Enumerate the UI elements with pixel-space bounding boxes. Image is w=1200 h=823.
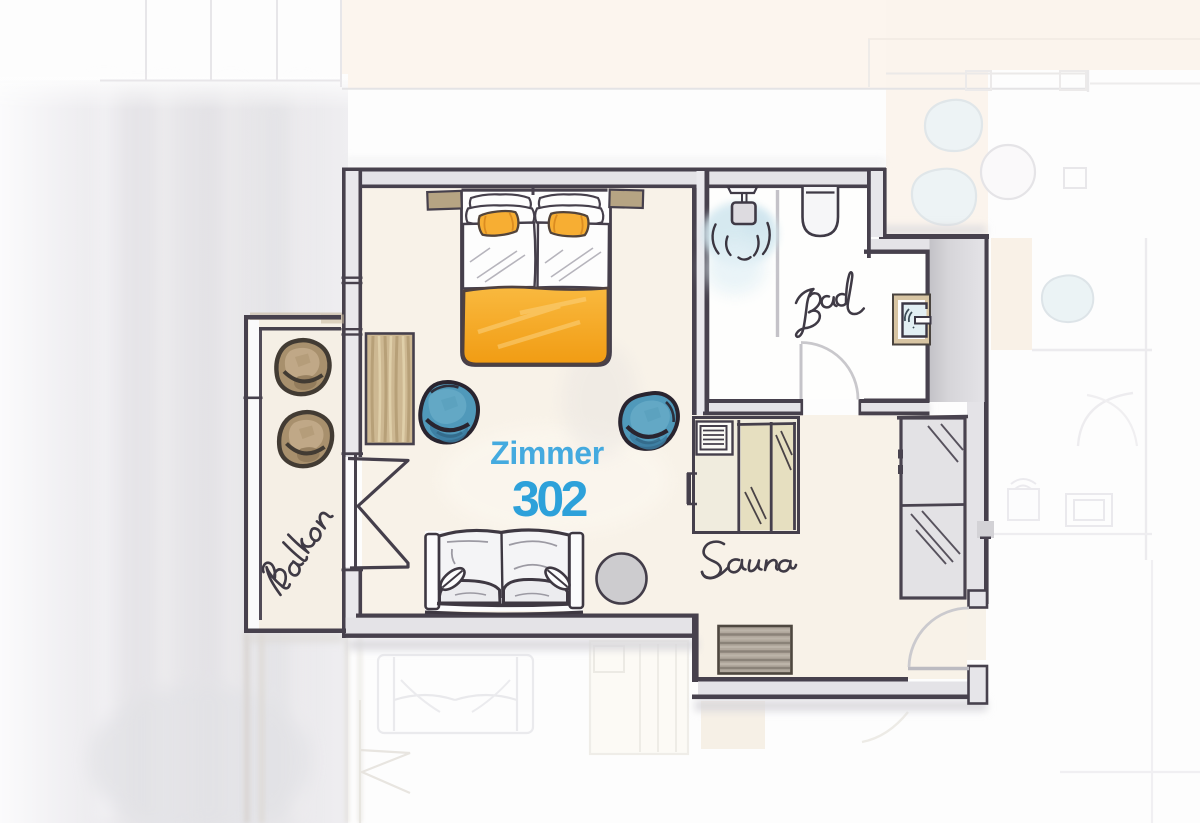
svg-text:302: 302 xyxy=(512,471,587,527)
svg-text:Zimmer: Zimmer xyxy=(490,435,604,471)
